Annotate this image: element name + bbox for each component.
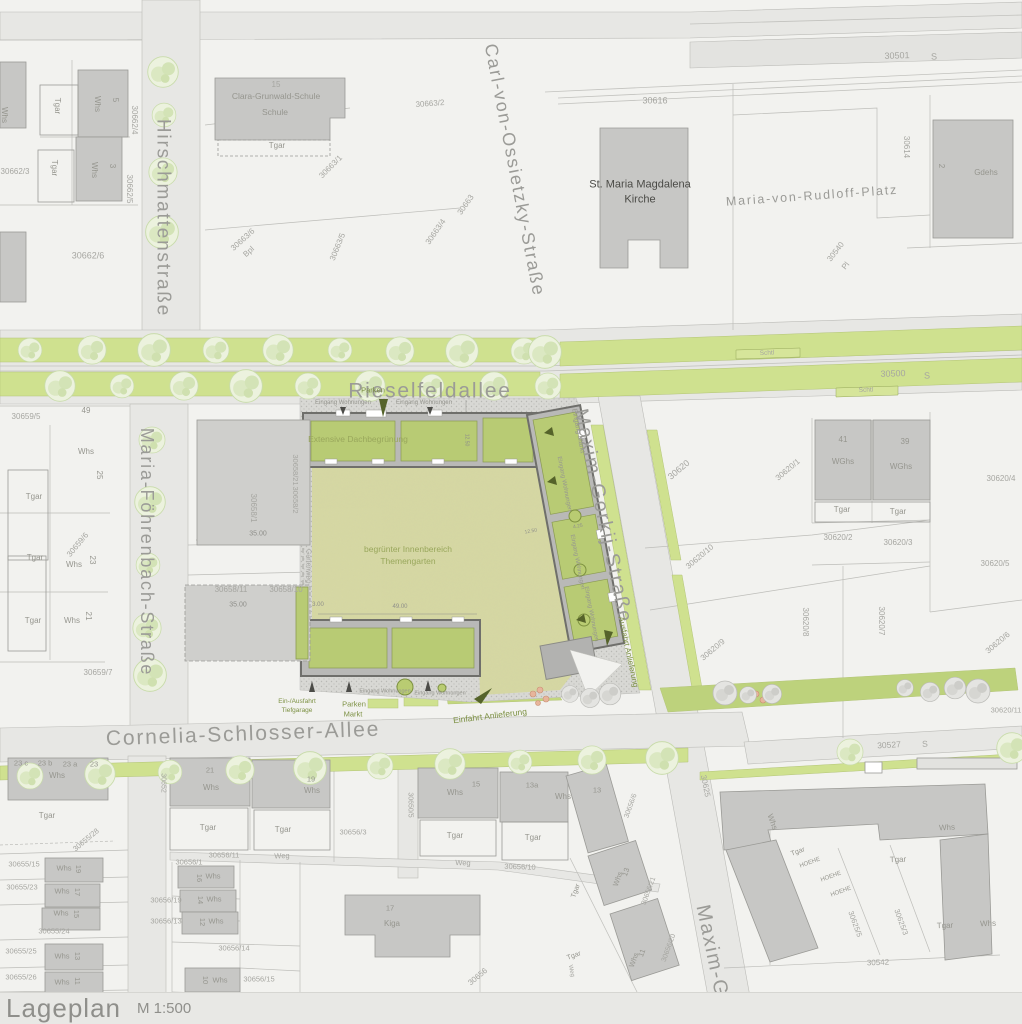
tree-icon [78, 336, 106, 364]
strip-building [185, 585, 310, 661]
tree-icon [135, 487, 166, 518]
tree-icon [139, 427, 165, 453]
gray-tree-icon [920, 682, 939, 701]
building-wghs-39 [873, 420, 930, 500]
tree-icon [226, 756, 254, 784]
gdehs-building [933, 120, 1013, 238]
tram-box-1 [736, 348, 800, 359]
tree-icon [230, 370, 263, 403]
tree-icon [133, 614, 161, 642]
tree-icon [386, 337, 414, 365]
tree-icon [45, 371, 76, 402]
tree-icon [134, 659, 167, 692]
map-scale: M 1:500 [137, 1000, 191, 1017]
building-south-wing [301, 620, 480, 676]
building-wghs-41 [815, 420, 871, 500]
site-plan-page: HirschmattenstraßeCarl-von-Ossietzky-Str… [0, 0, 1022, 1024]
tree-icon [152, 103, 176, 127]
block-building-east [940, 834, 992, 960]
tree-icon [355, 371, 386, 402]
tree-icon [837, 739, 863, 765]
gray-tree-icon [740, 687, 757, 704]
building-30658 [197, 420, 310, 545]
tree-icon [295, 373, 321, 399]
tree-icon [535, 373, 561, 399]
tree-icon [148, 57, 179, 88]
tram-box-2 [836, 386, 898, 397]
tree-icon [435, 749, 466, 780]
gray-tree-icon [713, 681, 737, 705]
tree-icon [294, 752, 327, 785]
tree-icon [529, 336, 562, 369]
gray-tree-icon [580, 688, 599, 707]
title-bar: Lageplan M 1:500 [0, 992, 1022, 1024]
school-building [215, 78, 345, 140]
tree-icon [646, 742, 679, 775]
gray-tree-icon [599, 683, 621, 705]
green-roof-north [311, 418, 533, 462]
tree-icon [138, 334, 171, 367]
site-plan-map [0, 0, 1022, 1024]
tree-icon [136, 553, 160, 577]
tree-icon [446, 335, 479, 368]
tree-icon [170, 372, 198, 400]
gray-tree-icon [897, 680, 914, 697]
tree-icon [110, 374, 134, 398]
tree-icon [18, 338, 42, 362]
tree-icon [17, 763, 43, 789]
tree-icon [203, 337, 229, 363]
tree-icon [508, 750, 532, 774]
street-30652 [128, 756, 166, 1024]
tree-icon [997, 733, 1022, 764]
tree-icon [158, 760, 182, 784]
gray-tree-icon [762, 684, 781, 703]
allee-strip-south [0, 372, 540, 396]
tree-icon [328, 338, 352, 362]
page-title: Lageplan [6, 993, 121, 1024]
tree-icon [146, 216, 179, 249]
tree-icon [367, 753, 393, 779]
tree-icon [85, 759, 116, 790]
tree-icon [420, 374, 444, 398]
tree-icon [578, 746, 606, 774]
tree-icon [263, 335, 294, 366]
green-bit-1 [368, 699, 398, 708]
gray-tree-icon [562, 686, 579, 703]
tree-icon [149, 158, 177, 186]
gray-tree-icon [944, 677, 966, 699]
gray-tree-icon [966, 679, 990, 703]
tree-icon [480, 372, 508, 400]
